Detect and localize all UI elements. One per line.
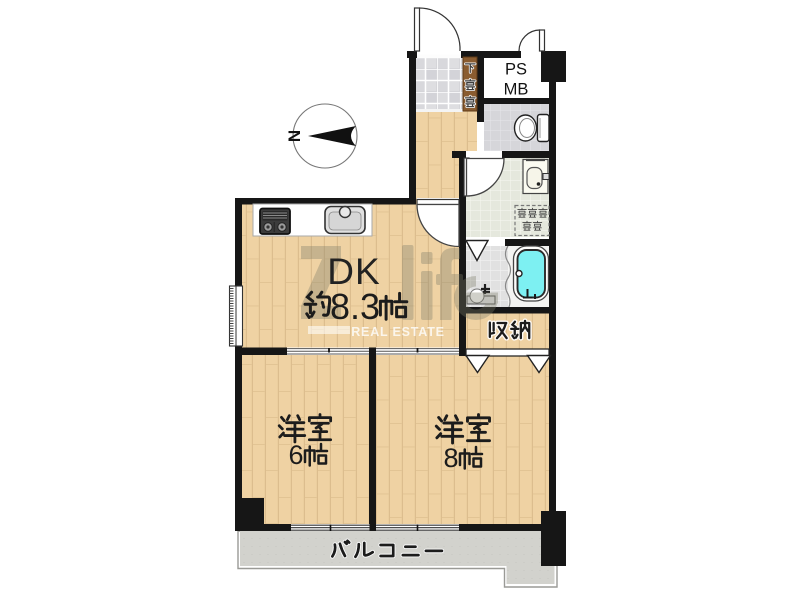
svg-text:8.3: 8.3 bbox=[330, 286, 380, 327]
svg-text:8: 8 bbox=[443, 443, 458, 473]
svg-text:N: N bbox=[285, 130, 304, 142]
svg-text:MB: MB bbox=[504, 81, 529, 99]
svg-text:REAL ESTATE: REAL ESTATE bbox=[351, 325, 445, 339]
svg-text:6: 6 bbox=[288, 440, 303, 470]
svg-text:PS: PS bbox=[505, 61, 527, 79]
